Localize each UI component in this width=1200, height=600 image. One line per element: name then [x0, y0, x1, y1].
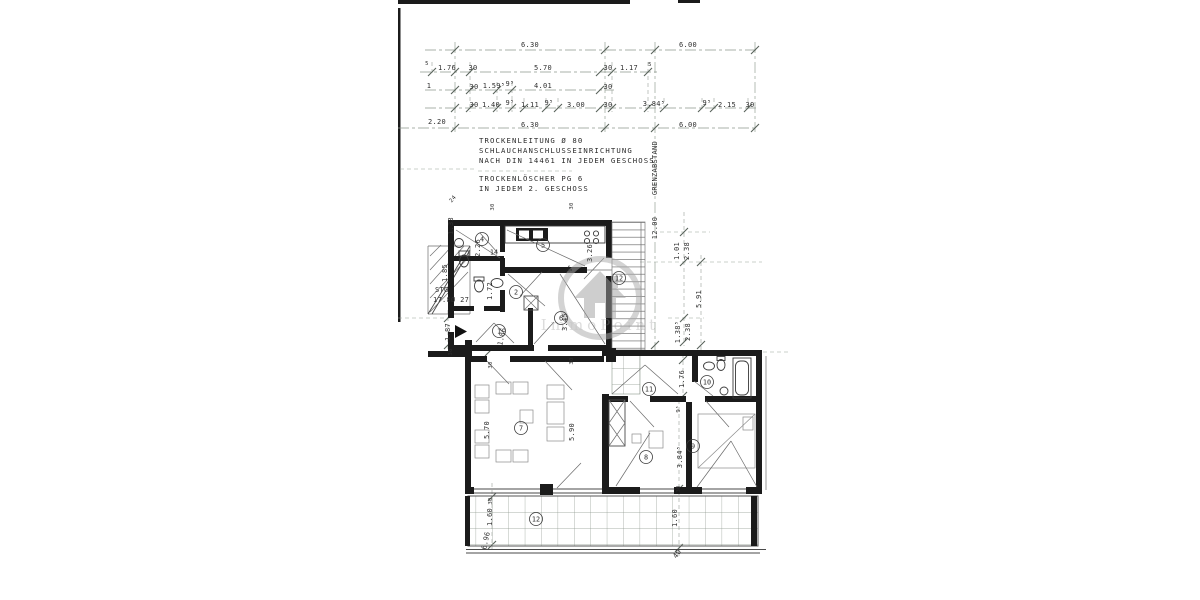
floor-plan-drawing: TROCKENLEITUNG Ø 80 SCHLAUCHANSCHLUSSEIN… [0, 0, 1200, 600]
annotation-line: SCHLAUCHANSCHLUSSEINRICHTUNG [479, 146, 633, 155]
room-number-label: 12 [615, 274, 623, 282]
dimension-label: 5.91 [695, 290, 703, 308]
dimension-label: 5 [425, 61, 429, 67]
dimension-label: 3.00 [567, 101, 585, 109]
dimension-label: 2.38 [683, 242, 691, 260]
dimension-label: 1.60 [671, 509, 679, 527]
dimension-label: 30 [603, 83, 612, 91]
entrance-arrow [455, 325, 467, 338]
room-number-label: 6 [559, 314, 563, 322]
dimension-label: 1.76 [438, 64, 456, 72]
dimension-label: 1.40 [482, 101, 500, 109]
room-number-label: 4 [480, 235, 484, 243]
dimension-label: 2.20 [428, 118, 446, 126]
room-number-label: 8 [644, 453, 648, 461]
dimension-label: 1.11 [521, 101, 539, 109]
room-number-label: 12 [532, 515, 540, 523]
stairs-value: 17.8Ø 27 [433, 296, 469, 304]
dimension-label: 1.33 [447, 217, 455, 235]
floor-plan-page: TROCKENLEITUNG Ø 80 SCHLAUCHANSCHLUSSEIN… [0, 0, 1200, 600]
dimension-label: 5 [648, 62, 652, 68]
dimension-label: 30 [603, 64, 612, 72]
dimension-label: 30 [603, 101, 612, 109]
dimension-label: 30 [569, 357, 575, 364]
grenzabstand-label: GRENZABSTAND [651, 141, 659, 195]
dimension-label: 30 [676, 485, 682, 492]
dimension-label: 3.84⁵ [643, 100, 666, 108]
dimension-label: 30 [490, 203, 496, 210]
dimension-label: 1.85 [441, 264, 449, 282]
dimension-label: 3.84⁵ [676, 446, 684, 469]
room-number-label: 11 [645, 385, 653, 393]
annotation-line: TROCKENLÖSCHER PG 6 [479, 174, 583, 183]
dimension-label: 24 [449, 194, 459, 204]
dimension-label: 2.38 [684, 323, 692, 341]
lower-floor-plan [428, 340, 766, 495]
dimension-label: 30 [569, 202, 575, 209]
dimension-label: 9⁵ [544, 99, 553, 107]
dimension-label: 5.70 [483, 421, 491, 439]
dimension-label: 6.30 [521, 121, 539, 129]
dimension-label: 3.26 [586, 244, 594, 262]
dimension-label: 9⁵ [505, 99, 514, 107]
room-number-label: 2 [514, 288, 518, 296]
annotation-line: TROCKENLEITUNG Ø 80 [479, 136, 583, 145]
room-number-label: 1 [497, 327, 501, 335]
lower-balcony [465, 496, 766, 553]
room-number-label: 9 [691, 442, 695, 450]
dimension-label: 4.01 [534, 82, 552, 90]
grenzabstand-value: 12.00 [651, 217, 659, 240]
dimension-label: 5.70 [534, 64, 552, 72]
room-number-label: 5 [541, 241, 545, 249]
dimension-label: 1.72 [486, 282, 494, 300]
annotation-line: IN JEDEM 2. GESCHOSS [479, 184, 589, 193]
dimension-label: 6.30 [521, 41, 539, 49]
dimension-label: 30 [469, 101, 478, 109]
dimension-label: 9⁵ [675, 405, 682, 412]
room-number-label: 14 [490, 248, 498, 256]
dimension-label: 30 [468, 64, 477, 72]
dimension-label: 1.17 [620, 64, 638, 72]
dimension-label: 5.90 [568, 423, 576, 441]
dimension-label: 9⁵ [702, 99, 711, 107]
dimension-label: 1.76 [678, 370, 686, 388]
dimension-label: 1.87 [444, 323, 452, 341]
dimension-label: 6.00 [679, 121, 697, 129]
stairs-label: STG [435, 286, 449, 294]
dimension-label: 9⁵ [567, 264, 574, 271]
dimension-label: 1.59⁵ [483, 82, 506, 90]
dimension-label: 30 [488, 361, 494, 368]
dimension-label: 30 [488, 497, 494, 504]
dimension-label: 9⁵ [505, 80, 514, 88]
dimension-label: 2.15 [718, 101, 736, 109]
dimension-label: 1.01 [673, 242, 681, 260]
dimension-label: 1.38⁵ [674, 321, 682, 344]
dimension-label: 1 [427, 82, 432, 90]
dimension-label: 30 [469, 83, 478, 91]
dimension-label: 1.60 [486, 508, 494, 526]
dimension-label: 30 [745, 101, 754, 109]
dimension-label: 6.00 [679, 41, 697, 49]
room-number-label: 7 [519, 424, 523, 432]
annotation-line: NACH DIN 14461 IN JEDEM GESCHOSS [479, 156, 655, 165]
dimension-label: 30 [448, 348, 454, 355]
room-number-label: 10 [703, 378, 711, 386]
